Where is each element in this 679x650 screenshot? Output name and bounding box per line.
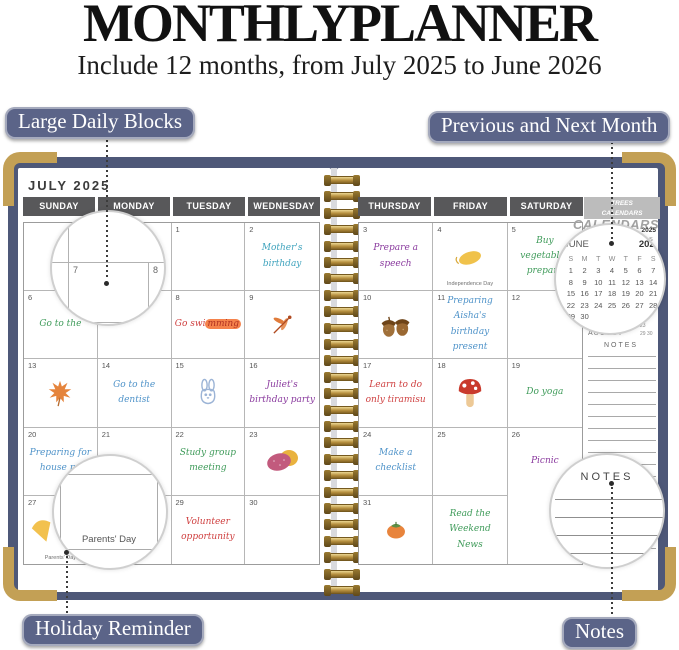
day-cell-15: 15	[172, 359, 246, 427]
magnified-day-7: 7	[73, 265, 78, 275]
spiral-coil	[324, 586, 360, 594]
handwritten-note: Read the Weekend News	[433, 507, 506, 553]
date-number: 22	[176, 430, 184, 439]
spiral-coil	[324, 438, 360, 446]
mini-calendar-june-magnified: JUNE2025SMTWTFS1234567891011121314151617…	[564, 239, 660, 323]
spiral-coil	[324, 471, 360, 479]
date-number: 13	[28, 361, 36, 370]
handwritten-note: Go swimming	[172, 317, 244, 332]
gold-corner-top-left	[3, 152, 57, 206]
date-number: 16	[249, 361, 257, 370]
date-number: 11	[437, 293, 445, 302]
date-number: 21	[102, 430, 110, 439]
connector-large-daily-blocks	[106, 140, 108, 280]
date-number: 2	[249, 225, 253, 234]
handwritten-note: Mother's birthday	[245, 241, 319, 272]
day-cell-19: 19Do yoga	[508, 359, 582, 427]
spiral-coil	[324, 291, 360, 299]
date-number: 25	[437, 430, 445, 439]
magnifier-notes: NOTES	[549, 453, 665, 569]
spiral-coil	[324, 307, 360, 315]
spiral-coil	[324, 488, 360, 496]
magnified-day-8: 8	[153, 265, 158, 275]
yellow-leaf-icon	[453, 245, 487, 269]
date-number: 20	[28, 430, 36, 439]
spiral-coil	[324, 324, 360, 332]
weekday-header: TUESDAY	[173, 197, 245, 216]
spiral-coil	[324, 537, 360, 545]
day-cell-25: 25	[433, 428, 507, 496]
weekday-header: SATURDAY	[510, 197, 583, 216]
magnified-holiday-text: Parents' Day	[60, 534, 158, 545]
date-number: 30	[249, 498, 257, 507]
callout-large-daily-blocks: Large Daily Blocks	[5, 107, 195, 139]
date-number: 24	[363, 430, 371, 439]
date-number: 5	[512, 225, 516, 234]
spiral-coil	[324, 209, 360, 217]
day-cell: Read the Weekend News	[433, 496, 507, 564]
spiral-coil	[324, 356, 360, 364]
date-number: 15	[176, 361, 184, 370]
date-number: 1	[176, 225, 180, 234]
holiday-label: Independence Day	[433, 281, 506, 287]
product-infographic: MONTHLYPLANNER Include 12 months, from J…	[0, 0, 679, 650]
spiral-coil	[324, 242, 360, 250]
magnifier-previous-next-month: JUNE2025SMTWTFS1234567891011121314151617…	[554, 223, 666, 335]
spiral-coil	[324, 504, 360, 512]
maple-leaf-icon	[45, 378, 75, 408]
date-number: 26	[512, 430, 520, 439]
day-cell-17: 17Learn to do only tiramisu	[359, 359, 433, 427]
handwritten-note: Make a checklist	[359, 446, 432, 477]
handwritten-note: Prepare a speech	[359, 241, 432, 272]
spiral-coil	[324, 373, 360, 381]
date-number: 9	[249, 293, 253, 302]
day-cell-14: 14Go to the dentist	[98, 359, 172, 427]
spiral-coil	[324, 520, 360, 528]
handwritten-note: Preparing Aisha's birthday present	[433, 294, 506, 355]
spiral-coil	[324, 340, 360, 348]
spiral-coil	[324, 406, 360, 414]
gold-corner-top-right	[622, 152, 676, 206]
connector-dot	[64, 550, 69, 555]
date-number: 6	[28, 293, 32, 302]
sweet-potato-icon	[264, 447, 300, 475]
notes-section-label: NOTES	[584, 342, 658, 349]
handwritten-note: Study group meeting	[172, 446, 245, 477]
spiral-coil	[324, 422, 360, 430]
date-number: 4	[437, 225, 441, 234]
day-cell-18: 18	[433, 359, 507, 427]
bunny-icon	[194, 378, 222, 408]
date-number: 23	[249, 430, 257, 439]
day-cell-3: 3Prepare a speech	[359, 223, 433, 291]
date-number: 14	[102, 361, 110, 370]
day-cell-1: 1	[172, 223, 246, 291]
date-number: 3	[363, 225, 367, 234]
ginkgo-icon	[28, 515, 54, 545]
connector-dot	[609, 241, 614, 246]
connector-notes	[611, 487, 613, 619]
handwritten-note: Juliet's birthday party	[245, 378, 319, 409]
connector-previous-next-month	[611, 142, 613, 240]
connector-dot	[104, 281, 109, 286]
day-cell-8: 8Go swimming	[172, 291, 246, 359]
day-cell-30: 30	[245, 496, 319, 564]
spiral-coil	[324, 455, 360, 463]
mini-calendar-august-fragment: 2329 30	[640, 322, 670, 338]
acorns-icon	[378, 309, 414, 341]
handwritten-note: Go to the	[36, 317, 84, 332]
day-cell-24: 24Make a checklist	[359, 428, 433, 496]
connector-holiday-reminder	[66, 556, 68, 616]
magnifier-holiday-reminder: Parents' Day	[52, 454, 168, 570]
callout-previous-next-month: Previous and Next Month	[428, 111, 670, 143]
weekday-header: THURSDAY	[358, 197, 431, 216]
day-cell-4: 4Independence Day	[433, 223, 507, 291]
date-number: 18	[437, 361, 445, 370]
spiral-coil	[324, 176, 360, 184]
spiral-coil	[324, 553, 360, 561]
callout-holiday-reminder: Holiday Reminder	[22, 614, 204, 646]
handwritten-note: Learn to do only tiramisu	[359, 378, 432, 409]
day-cell-16: 16Juliet's birthday party	[245, 359, 319, 427]
day-cell-23: 23	[245, 428, 319, 496]
spiral-coil	[324, 192, 360, 200]
spiral-coil	[324, 225, 360, 233]
handwritten-note: Do yoga	[523, 385, 566, 400]
date-number: 27	[28, 498, 36, 507]
date-number: 17	[363, 361, 371, 370]
connector-dot	[609, 481, 614, 486]
spiral-coil	[324, 570, 360, 578]
day-cell-29: 29Volunteer opportunity	[172, 496, 246, 564]
day-cell-10: 10	[359, 291, 433, 359]
date-number: 10	[363, 293, 371, 302]
date-number: 31	[363, 498, 371, 507]
page-title: MONTHLYPLANNER	[0, 0, 679, 54]
weekday-header-row-right: THURSDAYFRIDAYSATURDAY	[358, 197, 583, 216]
handwritten-note: Go to the dentist	[98, 378, 171, 409]
date-number: 29	[176, 498, 184, 507]
day-cell-9: 9	[245, 291, 319, 359]
date-number: 8	[176, 293, 180, 302]
handwritten-note: Volunteer opportunity	[172, 515, 245, 546]
spiral-coil	[324, 258, 360, 266]
gold-corner-bottom-left	[3, 547, 57, 601]
day-cell-13: 13	[24, 359, 98, 427]
callout-notes: Notes	[562, 617, 637, 649]
magnifier-large-daily-blocks: 7 8	[50, 210, 166, 326]
date-number: 12	[512, 293, 520, 302]
day-cell-22: 22Study group meeting	[172, 428, 246, 496]
day-cell-2: 2Mother's birthday	[245, 223, 319, 291]
date-number: 19	[512, 361, 520, 370]
magnified-notes-label: NOTES	[551, 471, 663, 483]
mushroom-icon	[455, 376, 485, 410]
weekday-header: WEDNESDAY	[248, 197, 320, 216]
handwritten-note: Picnic	[528, 454, 562, 469]
page-subtitle: Include 12 months, from July 2025 to Jun…	[0, 50, 679, 81]
spiral-coil	[324, 389, 360, 397]
persimmon-icon	[383, 519, 409, 541]
spiral-coil	[324, 274, 360, 282]
day-cell-31: 31	[359, 496, 433, 564]
day-cell-11: 11Preparing Aisha's birthday present	[433, 291, 507, 359]
dragonfly-icon	[269, 312, 295, 338]
weekday-header: FRIDAY	[434, 197, 507, 216]
